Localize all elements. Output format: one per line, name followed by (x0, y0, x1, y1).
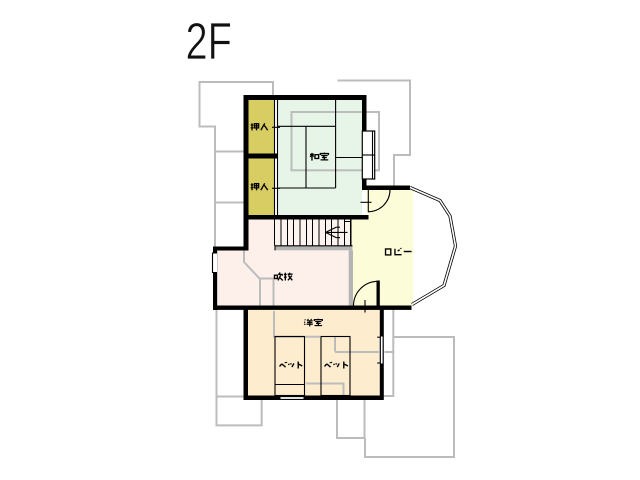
svg-text:2F: 2F (186, 12, 232, 71)
